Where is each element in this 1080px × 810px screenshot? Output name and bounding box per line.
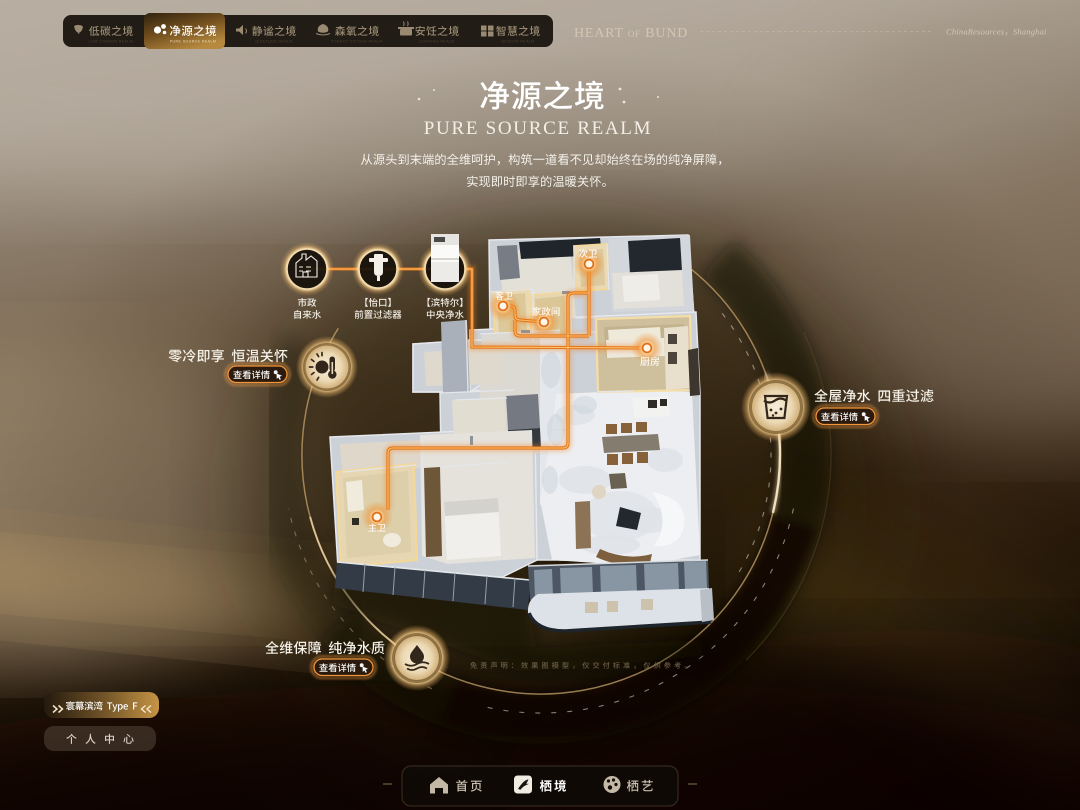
svg-text:WISDOM REALM: WISDOM REALM	[501, 40, 534, 44]
svg-text:LOW CARBON REALM: LOW CARBON REALM	[89, 40, 133, 44]
svg-text:QUIETUDE REALM: QUIETUDE REALM	[255, 40, 293, 44]
svg-text:HEART OF BUND: HEART OF BUND	[574, 26, 688, 41]
svg-text:ChinaResources，Shanghai: ChinaResources，Shanghai	[946, 27, 1047, 37]
svg-text:PURE SOURCE REALM: PURE SOURCE REALM	[424, 118, 652, 139]
svg-text:COOKING REALM: COOKING REALM	[419, 40, 455, 44]
svg-text:FOREST OXYGEN REALM: FOREST OXYGEN REALM	[331, 40, 383, 44]
svg-text:PURE SOURCE REALM: PURE SOURCE REALM	[170, 40, 217, 44]
